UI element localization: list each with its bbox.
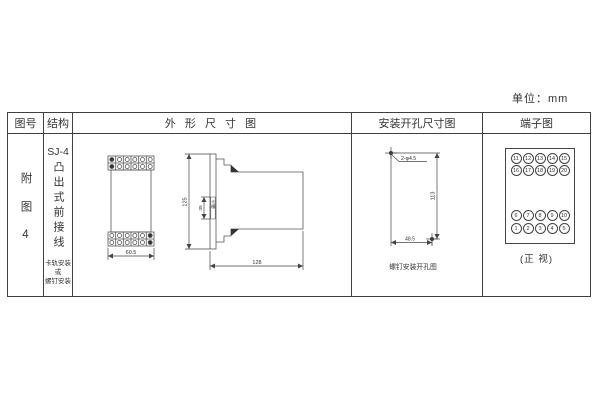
terminal-1: 1 bbox=[511, 223, 522, 234]
terminal-diagram-cell: 11 12 13 14 15 16 17 18 19 20 6 7 8 bbox=[483, 134, 590, 296]
terminal-6: 6 bbox=[511, 210, 522, 221]
terminal-12: 12 bbox=[523, 153, 534, 164]
outline-drawing-cell: 60.5 卡槽 bbox=[73, 134, 352, 296]
model-label: SJ-4 bbox=[47, 146, 69, 158]
terminal-9: 9 bbox=[547, 210, 558, 221]
mount-note-line1: 卡轨安装 bbox=[45, 260, 71, 267]
vertical-dim-value: 113 bbox=[431, 192, 437, 201]
terminal-row-4: 1 2 3 4 5 bbox=[506, 223, 574, 234]
terminal-5: 5 bbox=[559, 223, 570, 234]
terminal-15: 15 bbox=[559, 153, 570, 164]
mounting-caption: 螺钉安装开孔图 bbox=[389, 262, 437, 271]
slot-dim-value: 35 bbox=[198, 205, 204, 211]
header-outline: 外 形 尺 寸 图 bbox=[73, 113, 352, 134]
header-mounting: 安装开孔尺寸图 bbox=[352, 113, 483, 134]
terminal-14: 14 bbox=[547, 153, 558, 164]
terminal-7: 7 bbox=[523, 210, 534, 221]
mount-note-line3: 螺钉安装 bbox=[45, 278, 71, 285]
terminal-16: 16 bbox=[511, 165, 522, 176]
terminal-18: 18 bbox=[535, 165, 546, 176]
figure-no-cell: 附图4 bbox=[8, 134, 44, 296]
header-terminal: 端子图 bbox=[483, 113, 590, 134]
terminal-row-2: 16 17 18 19 20 bbox=[506, 165, 574, 176]
terminal-body-outline: 11 12 13 14 15 16 17 18 19 20 6 7 8 bbox=[505, 148, 575, 244]
height-dimension bbox=[185, 154, 210, 249]
terminal-17: 17 bbox=[523, 165, 534, 176]
drawing-sheet: 单位：mm 图号 结构 外 形 尺 寸 图 安装开孔尺寸图 端子图 附图4 SJ… bbox=[0, 0, 600, 400]
terminal-11: 11 bbox=[511, 153, 522, 164]
mount-note-line2: 或 bbox=[55, 269, 62, 276]
slot-label: 卡槽 bbox=[210, 199, 216, 210]
depth-value: 128 bbox=[252, 260, 261, 266]
horizontal-dim-value: 48.5 bbox=[405, 237, 415, 243]
mounting-drawing-cell: 2-φ4.5 113 48.5 螺钉安装开孔图 bbox=[352, 134, 483, 296]
height-value: 125 bbox=[183, 197, 189, 206]
structure-cell: SJ-4 凸出式前接线 卡轨安装 或 螺钉安装 bbox=[44, 134, 73, 296]
mounting-hole-drawing: 2-φ4.5 113 48.5 螺钉安装开孔图 bbox=[352, 134, 483, 297]
terminal-4: 4 bbox=[547, 223, 558, 234]
header-figure-no: 图号 bbox=[8, 113, 44, 134]
terminal-20: 20 bbox=[559, 165, 570, 176]
terminal-19: 19 bbox=[547, 165, 558, 176]
terminal-row-1: 11 12 13 14 15 bbox=[506, 153, 574, 164]
side-view bbox=[210, 154, 303, 249]
front-width-value: 60.5 bbox=[126, 250, 137, 256]
drawing-table: 图号 结构 外 形 尺 寸 图 安装开孔尺寸图 端子图 附图4 SJ-4 凸出式… bbox=[7, 112, 591, 297]
terminal-3: 3 bbox=[535, 223, 546, 234]
terminal-8: 8 bbox=[535, 210, 546, 221]
terminal-caption: (正 视) bbox=[483, 251, 590, 265]
outline-drawing: 60.5 卡槽 bbox=[73, 134, 352, 297]
terminal-13: 13 bbox=[535, 153, 546, 164]
terminal-10: 10 bbox=[559, 210, 570, 221]
holes-label: 2-φ4.5 bbox=[401, 156, 416, 162]
terminal-2: 2 bbox=[523, 223, 534, 234]
unit-label: 单位：mm bbox=[512, 90, 568, 106]
front-view bbox=[108, 156, 154, 246]
structure-type-label: 凸出式前接线 bbox=[50, 161, 66, 251]
figure-no-label: 附图4 bbox=[18, 172, 34, 258]
header-structure: 结构 bbox=[44, 113, 73, 134]
terminal-row-3: 6 7 8 9 10 bbox=[506, 210, 574, 221]
